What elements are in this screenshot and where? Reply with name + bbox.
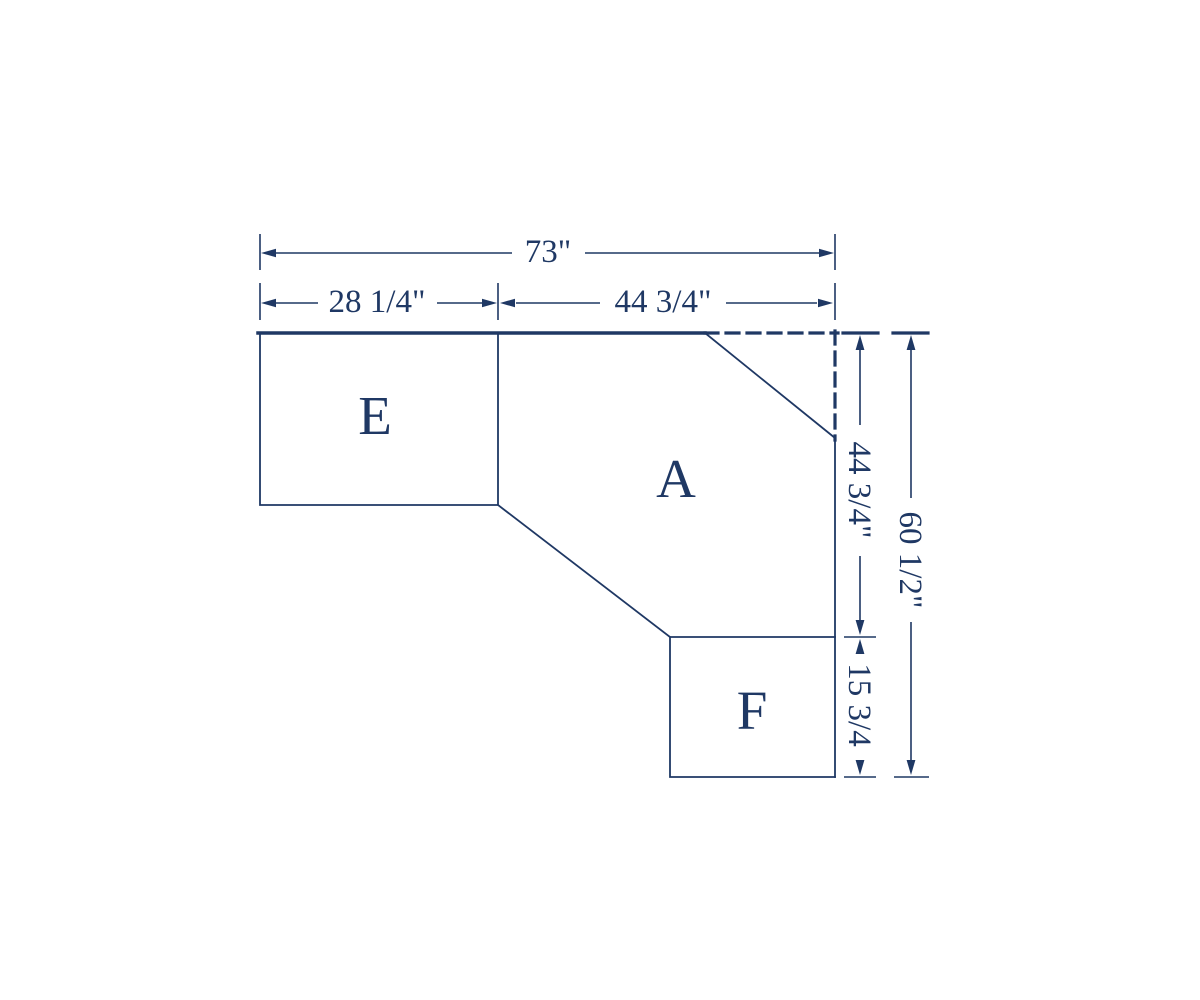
arrow-left-icon [261,299,276,308]
overall-width-dim-text: 73" [525,234,571,270]
arrow-down-icon [907,760,916,775]
dimension-diagram: E A F 73" 28 1/4" 44 3/4" 44 3/4" 15 3/4… [0,0,1200,1000]
lower-right-dim-text: 15 3/4 [841,663,877,746]
dimension-arrowheads [261,249,915,775]
arrow-up-icon [907,335,916,350]
arrow-right-icon [819,249,834,258]
right-section-dim-text: 44 3/4" [615,284,712,320]
drawing-canvas: E A F 73" 28 1/4" 44 3/4" 44 3/4" 15 3/4… [0,0,1200,1000]
overall-height-dim-text: 60 1/2" [892,512,928,609]
arrow-right-icon [482,299,497,308]
left-section-dim-text: 28 1/4" [329,284,426,320]
piece-a-outline [498,333,835,777]
upper-right-dim-text: 44 3/4" [841,442,877,539]
arrow-up-icon [856,639,865,654]
piece-label-a: A [656,448,696,509]
piece-label-f: F [737,680,768,741]
arrow-down-icon [856,620,865,635]
arrow-left-icon [500,299,515,308]
arrow-up-icon [856,335,865,350]
arrow-left-icon [261,249,276,258]
diagram-labels: E A F 73" 28 1/4" 44 3/4" 44 3/4" 15 3/4… [329,234,928,747]
piece-label-e: E [358,385,392,446]
dimension-lines [276,253,911,760]
arrow-down-icon [856,760,865,775]
arrow-right-icon [818,299,833,308]
